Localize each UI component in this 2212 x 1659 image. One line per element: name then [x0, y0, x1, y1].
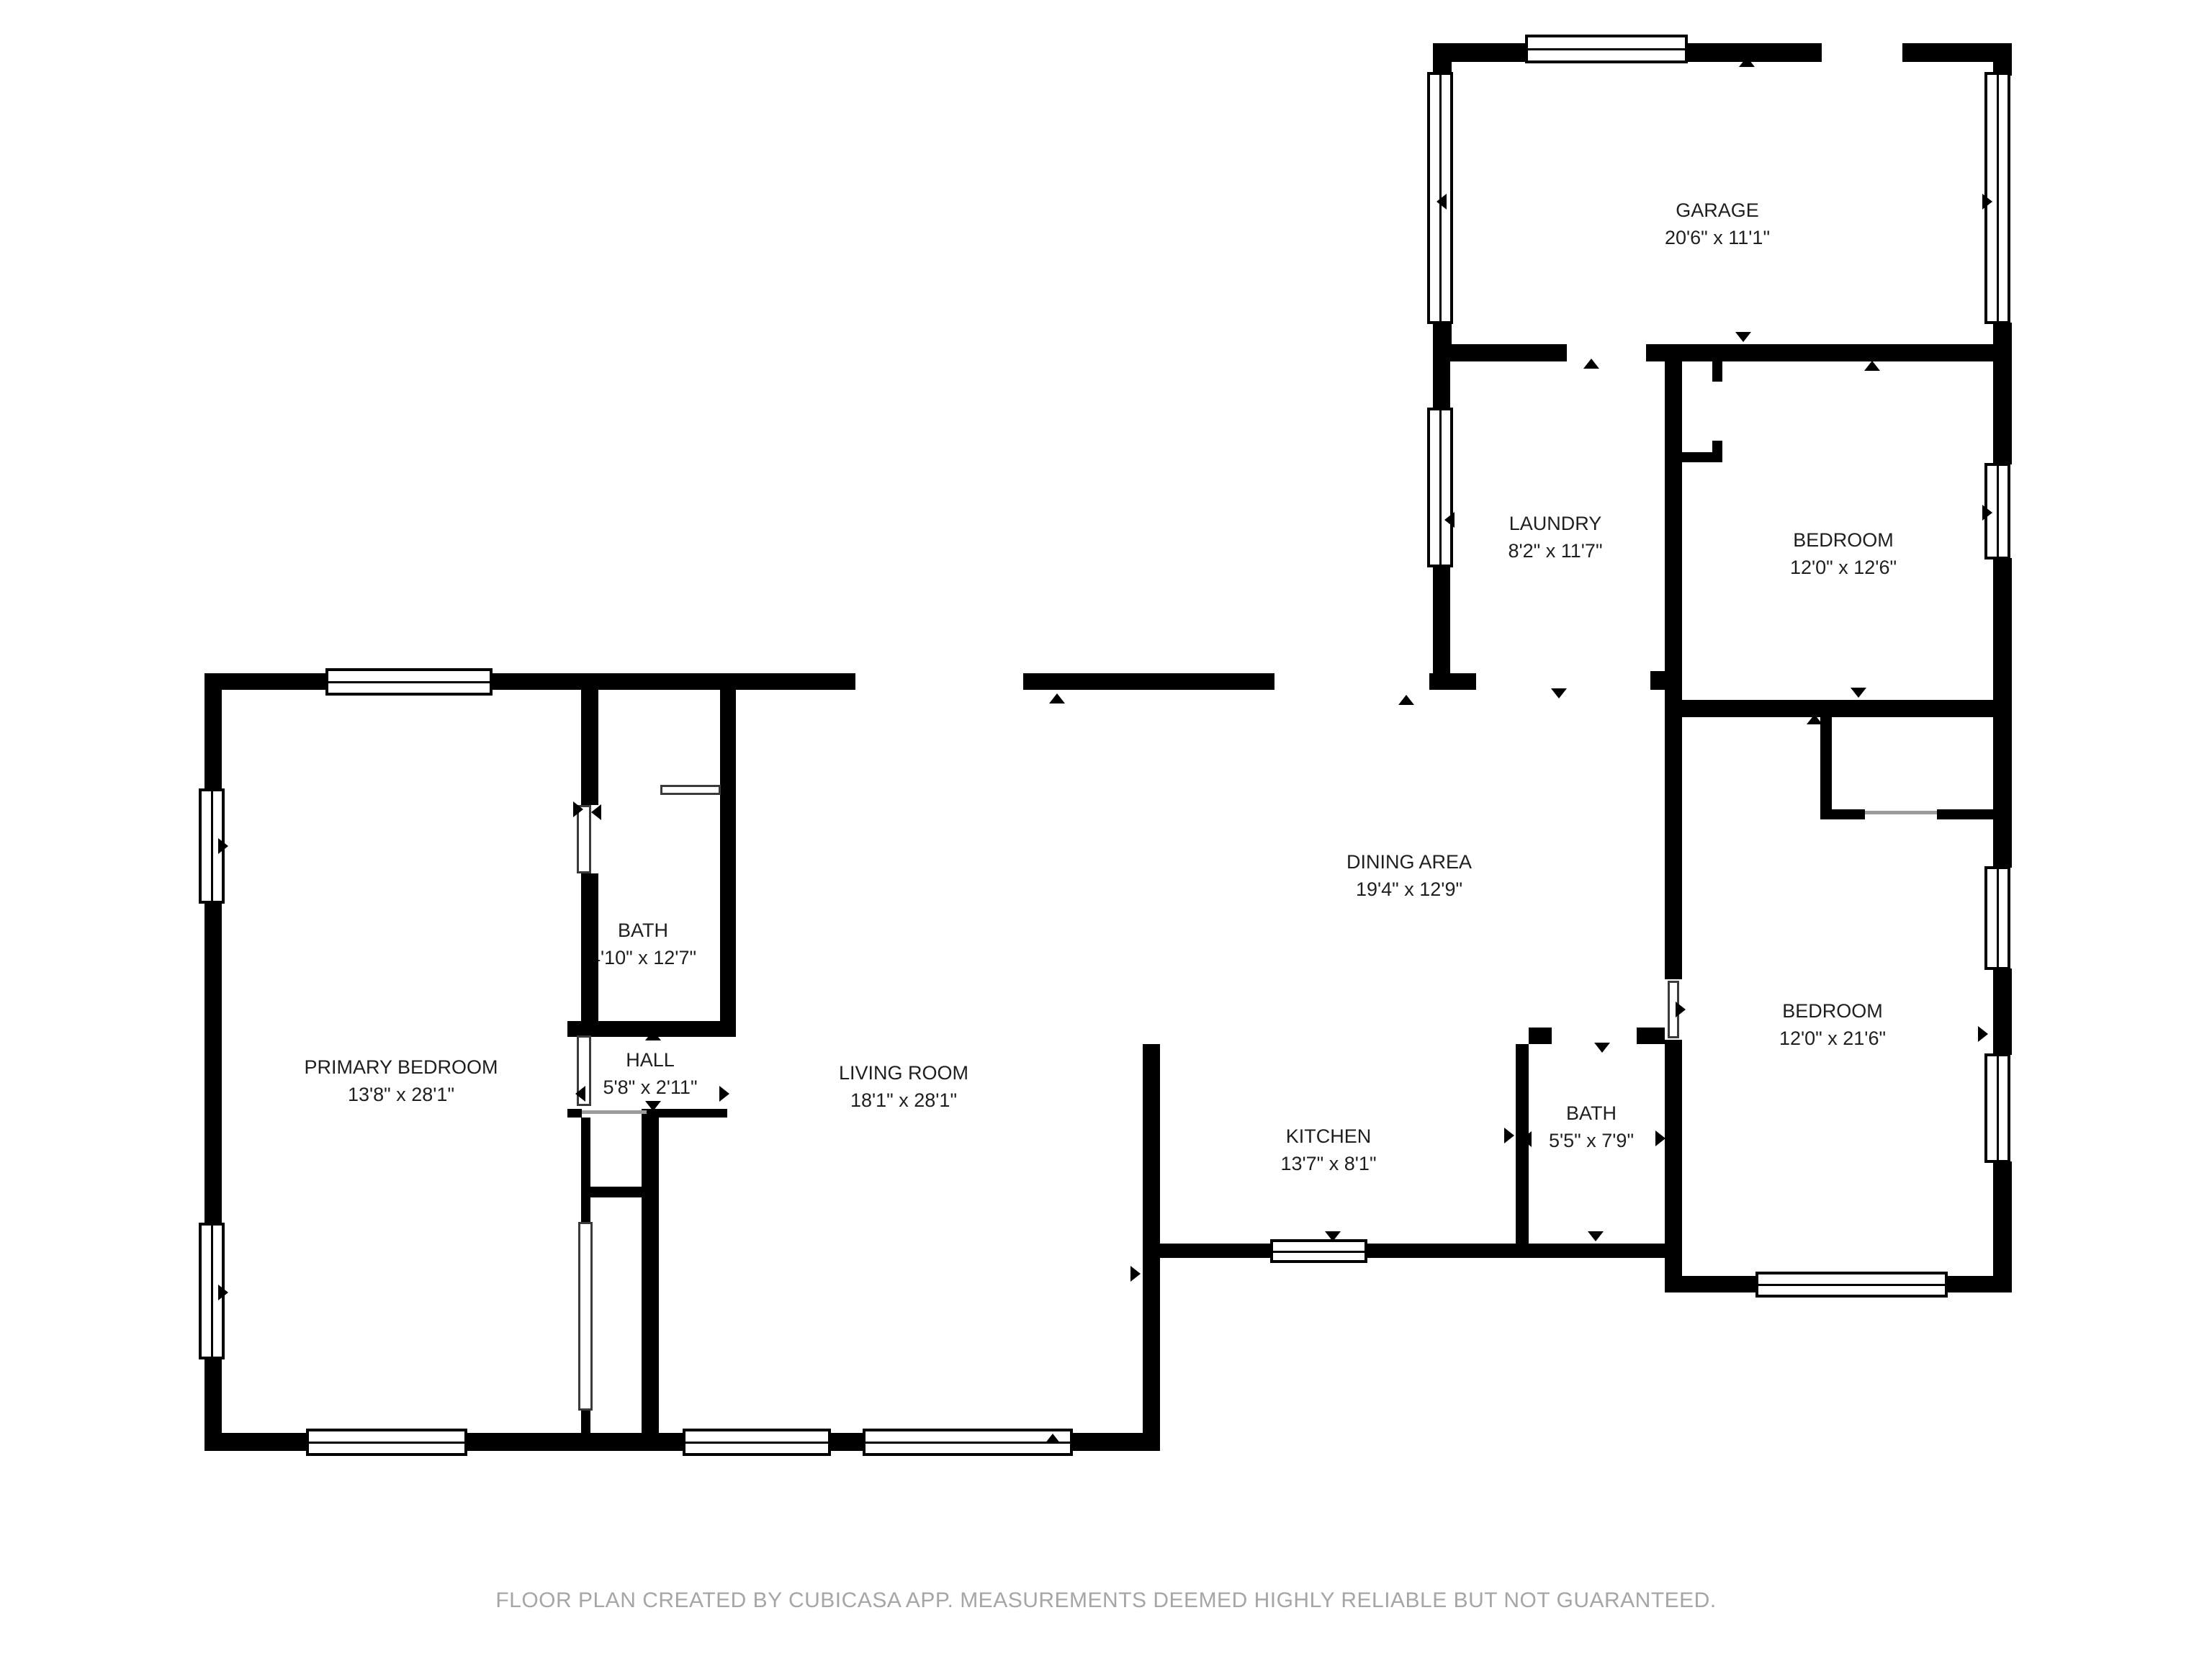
room-label-laundry: LAUNDRY8'2" x 11'7"	[1508, 510, 1602, 565]
floorplan-canvas: FLOOR PLAN CREATED BY CUBICASA APP. MEAS…	[0, 0, 2212, 1659]
opening-arrow-icon	[1807, 714, 1822, 724]
room-dimensions: 20'6" x 11'1"	[1665, 224, 1770, 251]
opening-arrow-icon	[645, 1101, 661, 1111]
wall-segment	[204, 902, 222, 1224]
room-name: PRIMARY BEDROOM	[304, 1053, 498, 1081]
wall-segment	[1712, 360, 1722, 382]
wall-segment	[1665, 360, 1682, 717]
window-pane-line	[1273, 1251, 1364, 1253]
opening-arrow-icon	[1676, 1002, 1686, 1017]
window-pane-line	[1528, 48, 1685, 50]
opening-arrow-icon	[573, 801, 583, 817]
window-pane-line	[328, 681, 490, 683]
door-leaf-icon	[578, 1222, 593, 1411]
window-pane-line	[211, 791, 213, 901]
wall-segment	[1665, 700, 2012, 717]
wall-segment	[1433, 43, 1452, 76]
wall-segment	[204, 673, 328, 690]
wall-segment	[1937, 809, 1995, 819]
room-dimensions: 19'4" x 12'9"	[1346, 876, 1472, 903]
room-name: GARAGE	[1665, 197, 1770, 224]
room-name: KITCHEN	[1280, 1123, 1376, 1150]
opening-arrow-icon	[1982, 505, 1992, 521]
wall-segment	[581, 1118, 590, 1222]
opening-arrow-icon	[1049, 693, 1065, 703]
room-label-bedroom-2: BEDROOM12'0" x 21'6"	[1779, 997, 1886, 1052]
opening-arrow-icon	[645, 1030, 661, 1040]
opening-arrow-icon	[1130, 1266, 1141, 1282]
wall-segment	[1529, 1028, 1552, 1044]
wall-segment	[1366, 1244, 1665, 1258]
room-label-hall: HALL5'8" x 2'11"	[603, 1046, 697, 1101]
room-dimensions: 4'10" x 12'7"	[590, 944, 696, 971]
wall-segment	[1665, 717, 1682, 979]
window-pane-line	[309, 1442, 464, 1444]
window-pane-line	[1997, 869, 1999, 967]
opening-arrow-icon	[1735, 332, 1751, 342]
window-icon	[863, 1429, 1073, 1456]
opening-arrow-icon	[591, 804, 601, 820]
wall-segment	[581, 1411, 590, 1433]
wall-segment	[1665, 1040, 1682, 1292]
wall-segment	[1665, 1276, 1757, 1292]
wall-segment	[1993, 558, 2012, 717]
wall-segment	[581, 873, 598, 1021]
wall-segment	[581, 1187, 650, 1197]
wall-segment	[1143, 1044, 1160, 1433]
room-label-garage: GARAGE20'6" x 11'1"	[1665, 197, 1770, 251]
room-dimensions: 8'2" x 11'7"	[1508, 537, 1602, 565]
room-name: LAUNDRY	[1508, 510, 1602, 537]
opening-arrow-icon	[1325, 1231, 1341, 1241]
wall-segment	[1820, 809, 1865, 819]
window-icon	[1525, 35, 1688, 63]
room-label-primary-bedroom: PRIMARY BEDROOM13'8" x 28'1"	[304, 1053, 498, 1108]
window-pane-line	[685, 1442, 828, 1444]
room-dimensions: 12'0" x 21'6"	[1779, 1025, 1886, 1052]
room-name: LIVING ROOM	[839, 1059, 968, 1087]
room-dimensions: 13'8" x 28'1"	[304, 1081, 498, 1108]
wall-segment	[1143, 1244, 1272, 1258]
room-label-dining-area: DINING AREA19'4" x 12'9"	[1346, 848, 1472, 903]
wall-segment	[491, 673, 855, 690]
window-icon	[683, 1429, 831, 1456]
window-pane-line	[1997, 75, 1999, 321]
opening-arrow-icon	[1437, 194, 1447, 210]
opening-arrow-icon	[1864, 361, 1880, 371]
window-icon	[325, 668, 493, 696]
wall-segment	[1993, 43, 2012, 76]
opening-arrow-icon	[1504, 1128, 1514, 1143]
opening-arrow-icon	[1739, 57, 1755, 67]
room-name: BEDROOM	[1779, 997, 1886, 1025]
room-name: HALL	[603, 1046, 697, 1074]
opening-arrow-icon	[617, 680, 633, 690]
opening-arrow-icon	[1444, 512, 1455, 528]
wall-segment	[1820, 717, 1832, 809]
opening-arrow-icon	[1982, 194, 1992, 210]
room-label-bath-hall: BATH5'5" x 7'9"	[1549, 1100, 1634, 1154]
wall-segment	[204, 673, 222, 790]
door-leaf-icon	[660, 785, 721, 795]
opening-arrow-icon	[1655, 1130, 1665, 1146]
opening-arrow-icon	[575, 1086, 585, 1102]
wall-segment	[567, 1109, 582, 1118]
opening-arrow-icon	[1978, 1026, 1988, 1042]
wall-segment	[1429, 673, 1476, 690]
window-pane-line	[1758, 1284, 1945, 1286]
room-label-living-room: LIVING ROOM18'1" x 28'1"	[839, 1059, 968, 1114]
wall-segment	[1682, 452, 1722, 462]
wall-segment	[1433, 359, 1450, 409]
window-icon	[1984, 1053, 2010, 1163]
opening-arrow-icon	[1045, 1434, 1061, 1444]
footer-disclaimer: FLOOR PLAN CREATED BY CUBICASA APP. MEAS…	[495, 1588, 1716, 1613]
room-name: BATH	[590, 917, 696, 944]
wall-segment	[1993, 360, 2012, 464]
window-icon	[306, 1429, 467, 1456]
room-label-bath-primary: BATH4'10" x 12'7"	[590, 917, 696, 971]
room-dimensions: 5'5" x 7'9"	[1549, 1127, 1634, 1154]
window-pane-line	[211, 1226, 213, 1357]
window-icon	[1427, 408, 1453, 567]
opening-arrow-icon	[1521, 1131, 1532, 1147]
wall-segment	[1433, 566, 1450, 690]
wall-segment	[1433, 344, 1567, 361]
wall-segment	[1993, 968, 2012, 1055]
opening-arrow-icon	[218, 838, 228, 854]
opening-arrow-icon	[218, 1285, 228, 1300]
sliding-door-track-icon	[1865, 811, 1937, 814]
room-dimensions: 12'0" x 12'6"	[1790, 554, 1897, 581]
room-dimensions: 13'7" x 8'1"	[1280, 1150, 1376, 1177]
wall-segment	[1646, 344, 2012, 361]
room-label-kitchen: KITCHEN13'7" x 8'1"	[1280, 1123, 1376, 1177]
window-icon	[1270, 1239, 1367, 1263]
wall-segment	[581, 690, 598, 805]
opening-arrow-icon	[1851, 688, 1866, 698]
window-pane-line	[1997, 1056, 1999, 1160]
wall-segment	[1071, 1433, 1160, 1451]
room-name: BEDROOM	[1790, 526, 1897, 554]
room-dimensions: 18'1" x 28'1"	[839, 1087, 968, 1114]
window-pane-line	[1439, 410, 1442, 565]
wall-segment	[1993, 1161, 2012, 1292]
wall-segment	[1023, 673, 1274, 690]
opening-arrow-icon	[1588, 1231, 1604, 1241]
opening-arrow-icon	[1594, 1043, 1610, 1053]
room-name: BATH	[1549, 1100, 1634, 1127]
opening-arrow-icon	[1583, 359, 1599, 369]
sliding-door-track-icon	[582, 1110, 647, 1114]
opening-arrow-icon	[1398, 695, 1414, 705]
opening-arrow-icon	[719, 1086, 729, 1102]
room-label-bedroom-1: BEDROOM12'0" x 12'6"	[1790, 526, 1897, 581]
window-icon	[1984, 866, 2010, 970]
wall-segment	[1946, 1276, 2012, 1292]
wall-segment	[720, 690, 736, 1021]
wall-segment	[1993, 717, 2012, 868]
window-icon	[1755, 1272, 1948, 1298]
room-dimensions: 5'8" x 2'11"	[603, 1074, 697, 1101]
wall-segment	[642, 1109, 659, 1451]
wall-segment	[204, 1433, 307, 1451]
window-pane-line	[1997, 466, 1999, 557]
room-name: DINING AREA	[1346, 848, 1472, 876]
opening-arrow-icon	[1551, 688, 1567, 698]
wall-segment	[829, 1433, 864, 1451]
wall-segment	[1637, 1028, 1665, 1044]
window-pane-line	[866, 1442, 1070, 1444]
wall-segment	[1650, 671, 1665, 690]
